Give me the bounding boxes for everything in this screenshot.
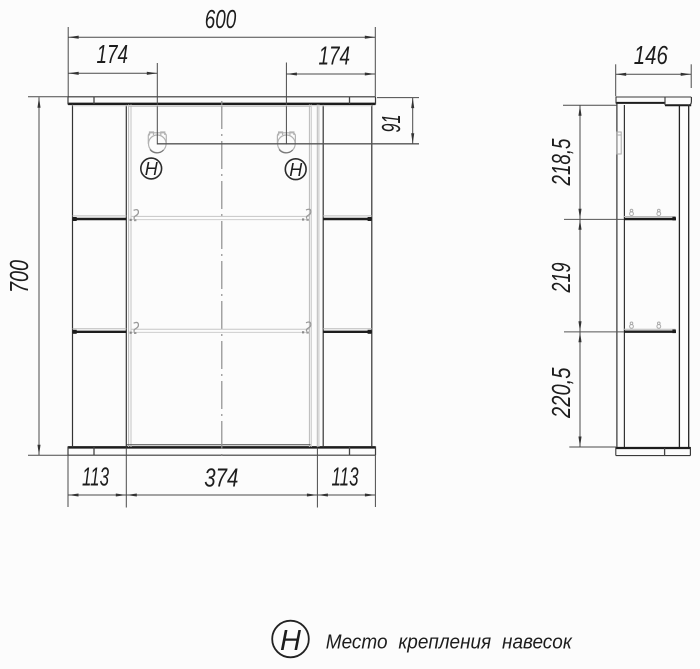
svg-text:146: 146 (634, 40, 668, 70)
svg-text:374: 374 (204, 462, 238, 492)
svg-text:Н: Н (280, 625, 301, 657)
svg-text:91: 91 (376, 115, 406, 133)
svg-text:220,5: 220,5 (546, 367, 576, 419)
svg-text:174: 174 (97, 39, 129, 69)
svg-text:Н: Н (289, 160, 303, 180)
svg-text:219: 219 (546, 263, 576, 294)
svg-text:Место крепления навесок: Место крепления навесок (326, 631, 573, 654)
svg-text:700: 700 (4, 260, 34, 293)
svg-text:218,5: 218,5 (546, 138, 576, 186)
svg-text:600: 600 (205, 4, 237, 34)
svg-text:Н: Н (145, 159, 159, 179)
svg-text:174: 174 (319, 41, 351, 71)
svg-text:113: 113 (332, 461, 359, 491)
svg-text:113: 113 (82, 461, 109, 491)
